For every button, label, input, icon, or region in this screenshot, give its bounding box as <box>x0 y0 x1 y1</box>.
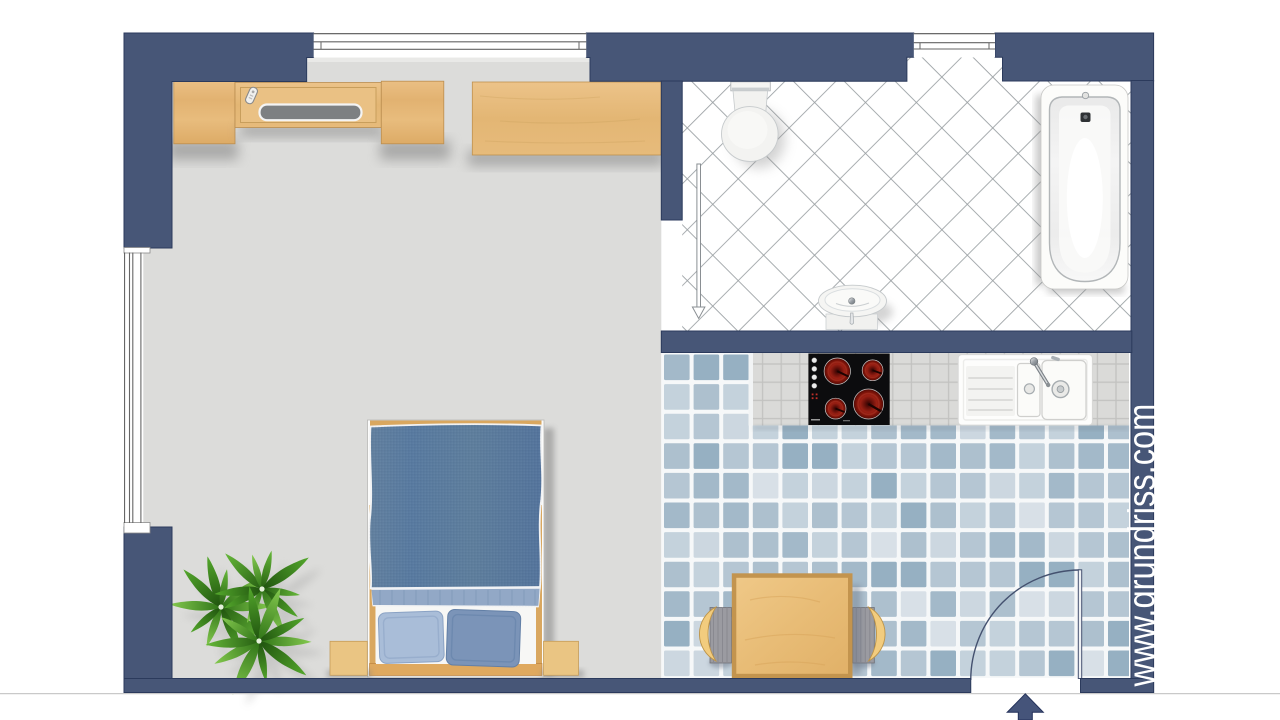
svg-text:www.grundriss.com: www.grundriss.com <box>1121 404 1163 688</box>
